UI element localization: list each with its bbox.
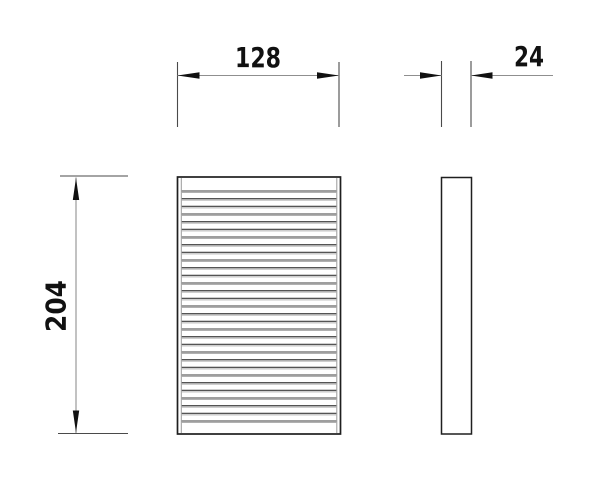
technical-drawing-canvas: 128 24 204 [0, 0, 600, 484]
filter-side-view [442, 178, 472, 435]
depth-dimension-label: 24 [514, 40, 544, 73]
height-dimension-label: 204 [40, 280, 73, 332]
arrowhead-left-icon [178, 72, 200, 78]
filter-front-view [178, 177, 341, 434]
width-dimension: 128 [178, 41, 340, 127]
arrowhead-right-icon [420, 72, 442, 78]
filter-dimension-drawing: 128 24 204 [0, 0, 600, 484]
side-view-outline [442, 178, 472, 435]
height-dimension: 204 [40, 176, 129, 434]
arrowhead-left-icon [471, 72, 493, 78]
arrowhead-up-icon [73, 178, 79, 200]
depth-dimension: 24 [404, 40, 553, 127]
arrowhead-right-icon [317, 72, 339, 78]
arrowhead-down-icon [73, 411, 79, 433]
width-dimension-label: 128 [235, 41, 281, 74]
